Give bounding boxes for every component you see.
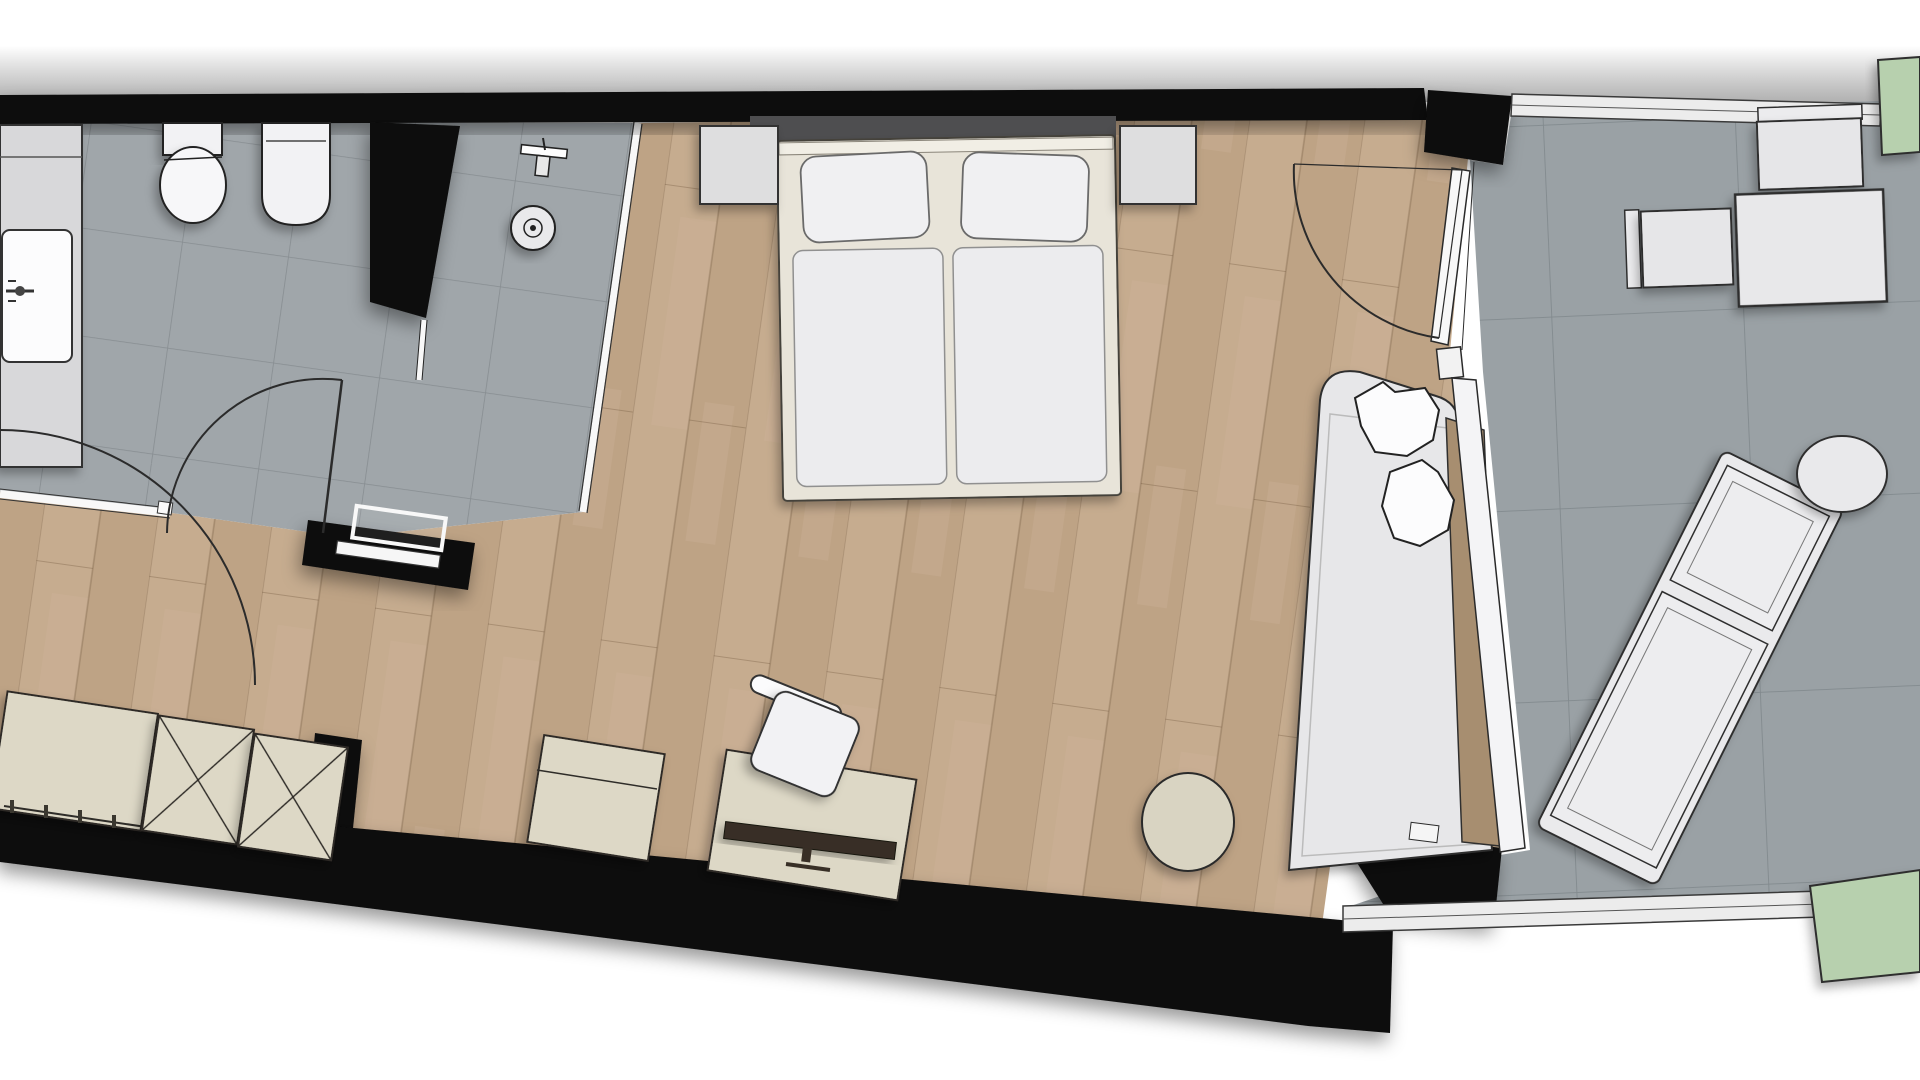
glass-wall-step — [1409, 822, 1439, 842]
planter-top-right — [1878, 57, 1920, 155]
backdrop-gradient — [0, 0, 1920, 102]
wardrobe-cabinet-x1 — [142, 716, 254, 845]
floor-plan-svg — [0, 0, 1920, 1080]
wardrobe-cabinet-x2 — [238, 734, 348, 861]
shower-drain-dot — [530, 225, 536, 231]
mattress-right — [953, 245, 1107, 484]
shower-valve-stem — [535, 155, 550, 176]
sun-lounger-round-pillow — [1797, 436, 1887, 512]
plan-items — [0, 0, 1920, 1033]
terrace-chair-west-seat — [1641, 208, 1734, 287]
floor-plan-page — [0, 0, 1920, 1080]
faucet-knob — [15, 286, 25, 296]
terrace-table — [1735, 189, 1887, 306]
nightstand-left — [700, 126, 778, 204]
tv-stand — [801, 848, 812, 863]
glass-wall-joint — [1436, 347, 1463, 379]
pillow-right — [961, 152, 1090, 242]
sideboard-cabinet — [527, 735, 664, 861]
bidet — [262, 123, 330, 225]
mattress-left — [793, 248, 947, 487]
nightstand-right — [1120, 126, 1196, 204]
stool-pouf — [1142, 773, 1234, 871]
wall-balcony-corner-block — [1424, 90, 1512, 165]
terrace-chair-north-seat — [1757, 118, 1863, 190]
planter-bottom-right — [1810, 870, 1920, 982]
pillow-left — [800, 151, 930, 243]
sink-basin — [2, 230, 72, 362]
terrace-chair-west-back — [1625, 210, 1642, 288]
